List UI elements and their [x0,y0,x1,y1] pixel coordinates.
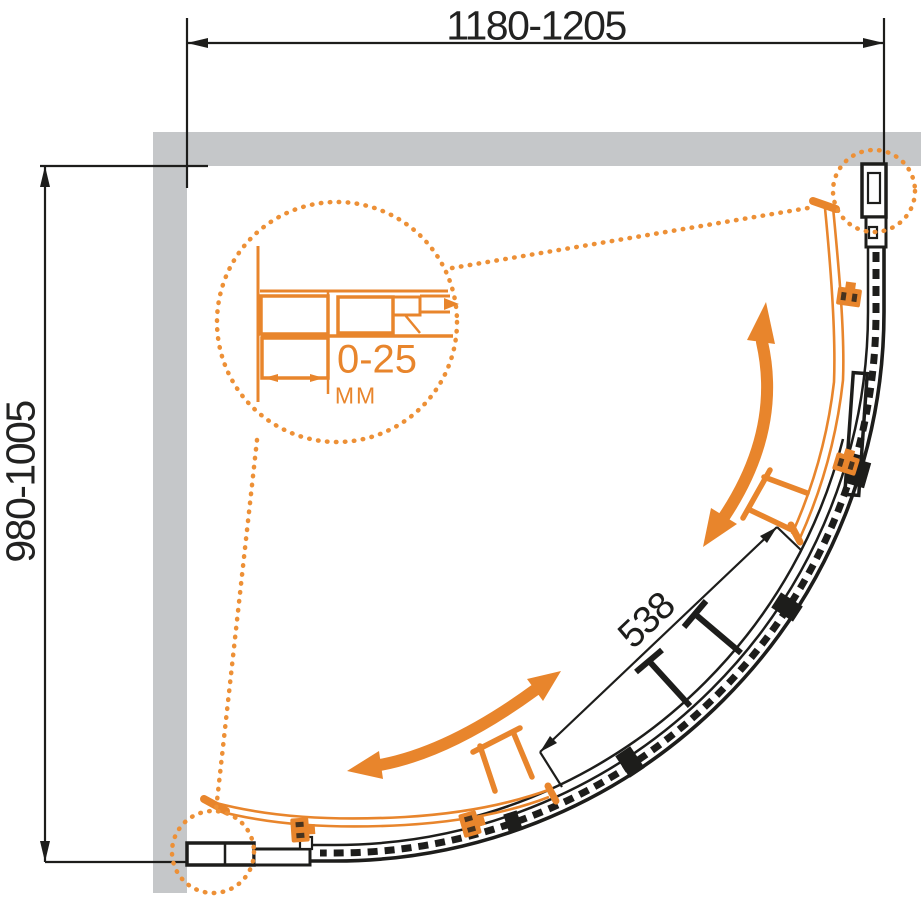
door-edge-outer [216,789,551,818]
detail-profile-chamber [338,297,393,333]
depth-dimension-label: 980-1005 [0,401,45,562]
knob-stem [649,661,690,706]
arrowhead-right [863,38,884,48]
detail-arrowhead-left [264,374,278,382]
drawing-linework [0,0,921,897]
arrowhead-left [347,751,383,779]
arrowhead-left [187,38,208,48]
arrowhead-down [40,841,50,862]
door-roller [458,808,488,838]
enclosure-track [187,163,884,861]
profile-adjustment-label: 0-25 [337,338,417,383]
roller-clamp [503,810,522,833]
handle-stem [480,746,495,791]
handle-stem [514,734,532,777]
wall-top [153,132,921,166]
callout-leader-to-bottom-left [216,440,257,810]
leader-bottom [540,752,562,787]
detail-profile-step [405,315,420,333]
arrowhead-up [40,166,50,187]
detail-gap-box [262,338,328,378]
detail-profile-chamber [261,296,328,334]
upper-slide-arrow-icon [703,302,775,547]
track-fittings [503,373,871,834]
door-handle-bottom [473,728,532,791]
technical-drawing-canvas: 1180-1205 980-1005 538 0-25 MM [0,0,921,897]
knob-stem [695,614,741,653]
track-outer-edge [187,163,884,861]
detail-arrowhead-right [310,374,324,382]
track-mid-edge [308,172,868,845]
detail-profile-notch [393,297,420,315]
sliding-door-bottom [204,786,556,826]
width-dimension-label: 1180-1205 [446,3,626,50]
callouts [172,150,915,893]
profile-adjustment-unit-label: MM [335,383,377,410]
callout-leader-to-top-right [452,207,814,268]
handle-stem [750,510,792,530]
handle-stem [764,477,807,493]
arrowhead-up [747,302,775,344]
wall-profile-top-right [862,164,886,247]
wall-left [153,132,187,893]
